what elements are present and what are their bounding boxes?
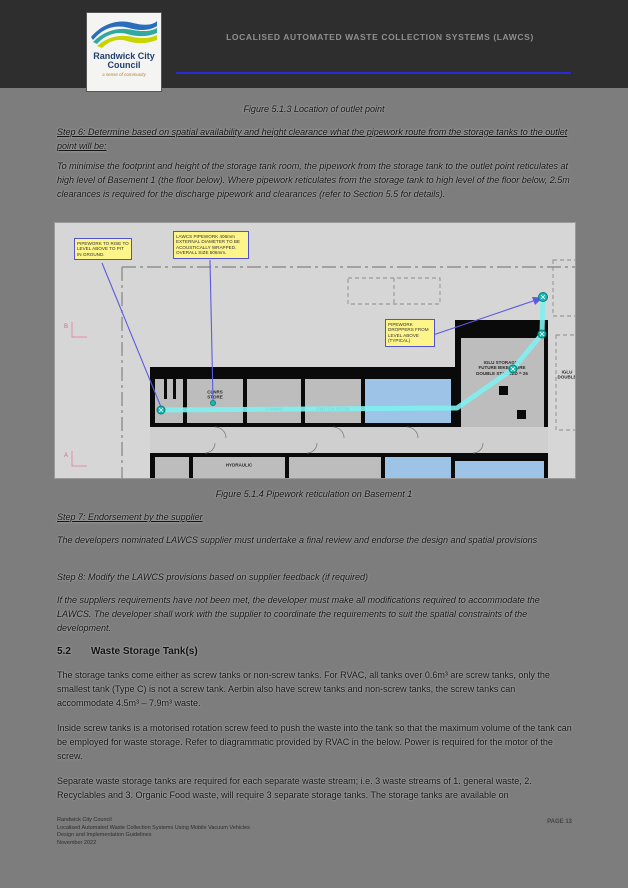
paragraph-tanks-1: The storage tanks come either as screw t… (57, 669, 572, 711)
room-bottom-blue-1 (385, 457, 451, 478)
paragraph-modify: If the suppliers requirements have not b… (57, 594, 572, 636)
paragraph-tanks-3: Separate waste storage tanks are require… (57, 775, 572, 803)
room-label-hydraulic: HYDRAULIC (226, 462, 253, 467)
callout-lawcs-pipework: LAWCS PIPEWORK 406mm EXTERNAL DIAMETER T… (173, 231, 249, 259)
title-rule (176, 72, 571, 74)
corridor (150, 427, 548, 453)
room-label-comms: COMMS (265, 406, 282, 411)
page-number: PAGE 13 (500, 819, 572, 825)
room-blue-store (365, 379, 451, 423)
room-bottom-1 (155, 457, 189, 478)
room-label-iglu-double: IGLU DOUBLE (558, 370, 576, 381)
room-label-switch: SWITCH ROOM (317, 406, 350, 411)
paragraph-step6: Step 6: Determine based on spatial avail… (57, 126, 572, 154)
paragraph-minimise: To minimise the footprint and height of … (57, 160, 572, 202)
axis-marker-b: B (64, 324, 68, 330)
room-bottom-2 (289, 457, 381, 478)
logo-name: Randwick City Council (93, 52, 155, 71)
room-small-cells (155, 379, 183, 423)
logo-tagline: a sense of community (102, 72, 146, 77)
paragraph-step7: Step 7: Endorsement by the supplier (57, 511, 572, 525)
room-switch (305, 379, 361, 423)
section-title: Waste Storage Tank(s) (91, 646, 198, 657)
room-clnrs-store (187, 379, 243, 423)
council-logo: Randwick City Council a sense of communi… (87, 13, 161, 91)
paragraph-endorse: The developers nominated LAWCS supplier … (57, 534, 572, 548)
paragraph-step8: Step 8: Modify the LAWCS provisions base… (57, 571, 572, 585)
figure-caption-top: Figure 5.1.3 Location of outlet point (0, 103, 628, 117)
callout-pipework-droppers: PIPEWORK DROPPERS FROM LEVEL ABOVE (TYPI… (385, 319, 435, 347)
axis-marker-a: A (64, 453, 68, 459)
callout-pipework-rise: PIPEWORK TO RISE TO LEVEL ABOVE TO PIT I… (74, 238, 132, 260)
figure-caption-bottom: Figure 5.1.4 Pipework reticulation on Ba… (0, 488, 628, 502)
paragraph-tanks-2: Inside screw tanks is a motorised rotati… (57, 722, 572, 764)
room-iglu-storage (461, 338, 544, 427)
room-bottom-blue-2 (455, 461, 544, 478)
room-label-clnrs: CLNRS STORE (207, 390, 223, 401)
footer-text: Randwick City Council Localised Automate… (57, 817, 487, 848)
section-number: 5.2 (57, 646, 91, 657)
document-title: LOCALISED AUTOMATED WASTE COLLECTION SYS… (180, 32, 580, 42)
logo-waves-icon (89, 13, 159, 51)
section-heading: 5.2Waste Storage Tank(s) (57, 646, 572, 657)
room-comms (247, 379, 301, 423)
floor-plan-figure: B A CLNRS STORE COMMS SWITCH ROOM IGLU S… (55, 223, 575, 478)
room-label-iglu: IGLU STORAGE / FUTURE BIKE STORE DOUBLE … (462, 360, 542, 376)
